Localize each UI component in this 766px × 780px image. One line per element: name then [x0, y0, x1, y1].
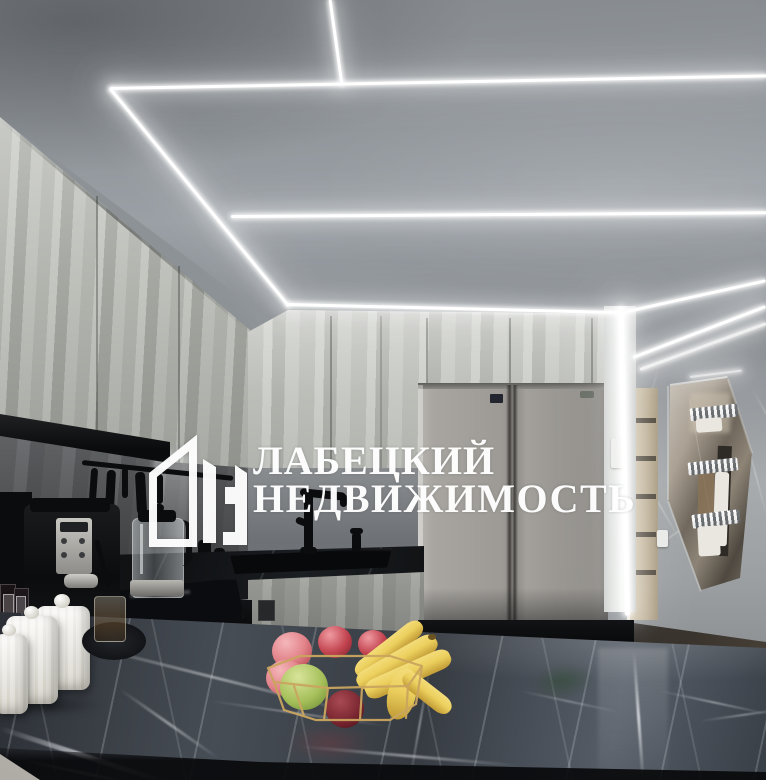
cabinet-seam: [96, 196, 98, 448]
faucet-base: [300, 547, 317, 554]
cabinet-emblem: [258, 600, 275, 621]
espresso-button: [61, 538, 67, 544]
towel: [696, 417, 723, 433]
canister-knob: [24, 606, 39, 619]
utensil: [122, 468, 128, 498]
banana-tip: [428, 634, 436, 640]
canister-knob: [54, 594, 70, 608]
mirror-facet: [667, 386, 669, 500]
backsplash: [248, 468, 420, 558]
kettle-handle: [174, 520, 192, 566]
cabinet-seam: [380, 316, 382, 480]
fridge-logo: [580, 391, 594, 398]
portafilter: [64, 574, 98, 588]
utensil: [156, 474, 163, 504]
soap-dispenser-head: [350, 528, 363, 534]
soap-dispenser: [352, 532, 361, 552]
cabinet-seam: [426, 318, 428, 384]
kitchen-photo: ЛАБЕЦКИЙ НЕДВИЖИМОСТЬ: [0, 0, 766, 780]
kettle-base: [130, 580, 184, 596]
espresso-machine-top: [30, 498, 110, 512]
espresso-display: [60, 522, 88, 532]
whiskey-glass: [94, 596, 126, 642]
espresso-button: [79, 552, 85, 558]
utensil: [135, 472, 147, 514]
towel: [697, 525, 721, 556]
kettle-knob: [152, 504, 164, 512]
canister-knob: [2, 624, 16, 636]
kettle-highlight: [140, 524, 143, 574]
ceramic-canister: [0, 634, 28, 714]
fridge-display: [490, 394, 503, 403]
espresso-button: [61, 552, 67, 558]
fruit-reflection: [286, 726, 372, 760]
gold-wire-basket: [258, 648, 428, 726]
espresso-button: [79, 538, 85, 544]
cabinet-seam: [591, 318, 593, 384]
light-switch: [657, 530, 668, 547]
cabinet-seam: [509, 318, 511, 384]
faucet-spout-tip: [340, 494, 347, 507]
